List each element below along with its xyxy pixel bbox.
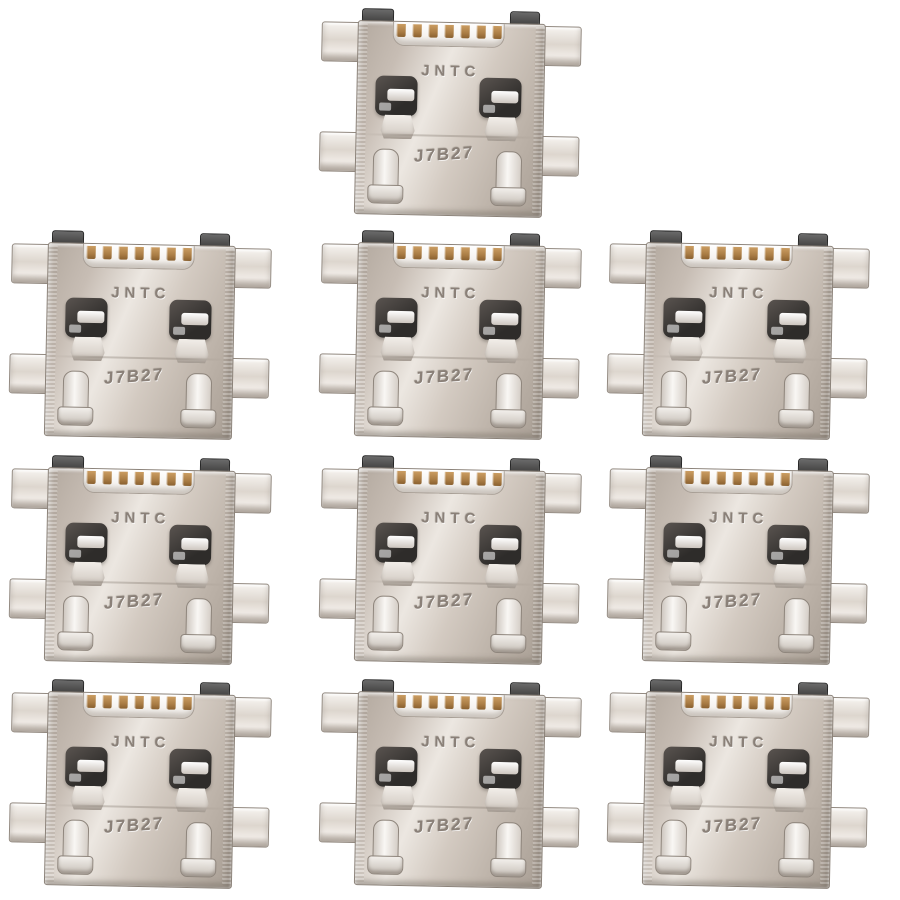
contact-pin <box>748 696 757 709</box>
contact-pin <box>134 247 143 260</box>
contact-pin <box>732 472 741 485</box>
shell-edge-texture-left <box>355 470 368 658</box>
contact-pin <box>86 695 95 708</box>
latch-slot-highlight <box>387 89 414 102</box>
contact-pin <box>780 697 789 710</box>
latch-slot-highlight <box>675 760 702 773</box>
contact-pin <box>476 248 485 261</box>
charging-port-connector-4: JNTC J7B27 <box>606 229 870 440</box>
latch-window-right <box>767 525 810 566</box>
contact-pin <box>700 246 709 259</box>
shell-edge-texture-right <box>222 698 235 886</box>
contact-pin <box>412 24 421 37</box>
latch-window-right <box>479 749 522 790</box>
charging-port-connector-2: JNTC J7B27 <box>8 229 272 440</box>
solder-leg-left <box>372 148 399 189</box>
contact-pin <box>396 246 405 259</box>
contact-pin <box>716 696 725 709</box>
latch-glint <box>69 550 81 558</box>
latch-slot-highlight <box>77 760 104 773</box>
latch-slot-highlight <box>387 760 414 773</box>
shell-edge-texture-left <box>45 245 58 433</box>
contact-pin <box>476 473 485 486</box>
charging-port-connector-9: JNTC J7B27 <box>318 678 582 889</box>
solder-leg-right <box>495 598 522 639</box>
latch-window-right <box>479 78 522 119</box>
latch-window-left <box>65 297 108 338</box>
latch-window-left <box>65 746 108 787</box>
contact-pin <box>460 247 469 260</box>
solder-leg-left <box>62 370 89 411</box>
pin-notch <box>392 469 504 495</box>
latch-glint <box>483 552 495 560</box>
contact-pin <box>118 472 127 485</box>
contact-pin <box>732 247 741 260</box>
contact-pin <box>86 471 95 484</box>
latch-glint <box>173 776 185 784</box>
latch-window-right <box>169 749 212 790</box>
shell-edge-texture-right <box>532 474 545 662</box>
latch-glint <box>379 774 391 782</box>
contact-pin <box>134 472 143 485</box>
connector-shell: JNTC J7B27 <box>44 467 236 665</box>
shell-edge-texture-left <box>45 694 58 882</box>
contact-pin <box>428 25 437 38</box>
contact-pin <box>102 695 111 708</box>
latch-window-left <box>663 297 706 338</box>
pin-notch <box>392 22 504 48</box>
pin-notch <box>392 244 504 270</box>
contact-pin <box>412 695 421 708</box>
connector-shell: JNTC J7B27 <box>354 691 546 889</box>
shell-edge-texture-left <box>45 470 58 658</box>
solder-leg-right <box>783 373 810 414</box>
solder-leg-right <box>495 373 522 414</box>
contact-pin <box>492 26 501 39</box>
latch-slot-highlight <box>387 311 414 324</box>
latch-window-left <box>375 75 418 116</box>
latch-slot-highlight <box>387 536 414 549</box>
contact-pin <box>428 247 437 260</box>
pin-notch <box>82 244 194 270</box>
latch-window-right <box>169 525 212 566</box>
latch-glint <box>771 552 783 560</box>
contact-pin <box>444 472 453 485</box>
latch-window-left <box>663 746 706 787</box>
connector-shell: JNTC J7B27 <box>44 691 236 889</box>
latch-slot-highlight <box>491 762 518 775</box>
pin-notch <box>680 469 792 495</box>
contact-pin <box>684 471 693 484</box>
contact-pin <box>716 472 725 485</box>
contact-pins <box>396 471 501 494</box>
latch-window-right <box>479 525 522 566</box>
contact-pins <box>684 695 789 718</box>
latch-slot-highlight <box>181 538 208 551</box>
contact-pin <box>780 473 789 486</box>
charging-port-connector-1: JNTC J7B27 <box>318 7 582 218</box>
latch-glint <box>379 325 391 333</box>
contact-pin <box>150 247 159 260</box>
charging-port-connector-5: JNTC J7B27 <box>8 454 272 665</box>
shell-edge-texture-right <box>532 27 545 215</box>
contact-pins <box>684 246 789 269</box>
connector-shell: JNTC J7B27 <box>642 242 834 440</box>
contact-pin <box>86 246 95 259</box>
contact-pins <box>86 471 191 494</box>
contact-pin <box>182 697 191 710</box>
contact-pin <box>732 696 741 709</box>
solder-leg-left <box>660 595 687 636</box>
product-photo: JNTC J7B27 <box>0 0 900 900</box>
latch-window-right <box>767 749 810 790</box>
shell-edge-texture-right <box>532 249 545 437</box>
latch-window-right <box>479 300 522 341</box>
latch-slot-highlight <box>77 311 104 324</box>
contact-pin <box>102 471 111 484</box>
pin-notch <box>82 693 194 719</box>
contact-pin <box>748 247 757 260</box>
contact-pin <box>444 25 453 38</box>
latch-slot-highlight <box>491 313 518 326</box>
latch-glint <box>69 325 81 333</box>
shell-edge-texture-right <box>532 698 545 886</box>
charging-port-connector-6: JNTC J7B27 <box>318 454 582 665</box>
latch-slot-highlight <box>779 538 806 551</box>
connector-shell: JNTC J7B27 <box>642 467 834 665</box>
pin-notch <box>680 693 792 719</box>
connector-shell: JNTC J7B27 <box>354 20 546 218</box>
contact-pin <box>182 473 191 486</box>
connector-shell: JNTC J7B27 <box>642 691 834 889</box>
solder-leg-right <box>185 598 212 639</box>
latch-window-right <box>169 300 212 341</box>
latch-glint <box>173 552 185 560</box>
contact-pins <box>684 471 789 494</box>
connector-shell: JNTC J7B27 <box>354 242 546 440</box>
solder-leg-right <box>783 822 810 863</box>
contact-pin <box>444 247 453 260</box>
contact-pin <box>396 24 405 37</box>
shell-edge-texture-left <box>355 23 368 211</box>
solder-leg-right <box>185 822 212 863</box>
charging-port-connector-8: JNTC J7B27 <box>8 678 272 889</box>
contact-pin <box>764 697 773 710</box>
contact-pin <box>102 246 111 259</box>
latch-glint <box>667 774 679 782</box>
latch-glint <box>771 776 783 784</box>
contact-pin <box>134 696 143 709</box>
shell-edge-texture-left <box>643 470 656 658</box>
latch-slot-highlight <box>779 762 806 775</box>
connector-shell: JNTC J7B27 <box>354 467 546 665</box>
contact-pin <box>476 697 485 710</box>
pin-notch <box>680 244 792 270</box>
contact-pin <box>460 25 469 38</box>
contact-pin <box>118 696 127 709</box>
contact-pin <box>412 246 421 259</box>
shell-edge-texture-left <box>643 694 656 882</box>
pin-notch <box>392 693 504 719</box>
latch-window-left <box>375 297 418 338</box>
contact-pins <box>86 695 191 718</box>
shell-edge-texture-right <box>222 474 235 662</box>
latch-slot-highlight <box>77 536 104 549</box>
shell-edge-texture-left <box>355 694 368 882</box>
shell-edge-texture-left <box>355 245 368 433</box>
shell-edge-texture-left <box>643 245 656 433</box>
contact-pin <box>428 696 437 709</box>
latch-glint <box>173 327 185 335</box>
contact-pin <box>764 473 773 486</box>
contact-pin <box>700 471 709 484</box>
contact-pin <box>476 26 485 39</box>
shell-edge-texture-right <box>820 474 833 662</box>
contact-pin <box>150 472 159 485</box>
contact-pin <box>460 472 469 485</box>
latch-glint <box>483 327 495 335</box>
contact-pin <box>396 695 405 708</box>
solder-leg-right <box>495 822 522 863</box>
contact-pins <box>396 246 501 269</box>
latch-window-left <box>663 522 706 563</box>
latch-glint <box>667 550 679 558</box>
latch-glint <box>69 774 81 782</box>
contact-pin <box>492 697 501 710</box>
shell-edge-texture-right <box>820 698 833 886</box>
connector-shell: JNTC J7B27 <box>44 242 236 440</box>
solder-leg-right <box>783 598 810 639</box>
solder-leg-right <box>185 373 212 414</box>
contact-pin <box>700 695 709 708</box>
latch-window-left <box>375 522 418 563</box>
solder-leg-left <box>62 819 89 860</box>
contact-pin <box>492 473 501 486</box>
contact-pin <box>396 471 405 484</box>
contact-pins <box>396 695 501 718</box>
latch-glint <box>379 103 391 111</box>
latch-slot-highlight <box>491 538 518 551</box>
contact-pin <box>428 472 437 485</box>
latch-window-right <box>767 300 810 341</box>
latch-slot-highlight <box>779 313 806 326</box>
latch-glint <box>771 327 783 335</box>
contact-pin <box>684 695 693 708</box>
contact-pin <box>166 697 175 710</box>
contact-pin <box>684 246 693 259</box>
charging-port-connector-10: JNTC J7B27 <box>606 678 870 889</box>
contact-pin <box>716 247 725 260</box>
solder-leg-left <box>660 819 687 860</box>
contact-pins <box>396 24 501 47</box>
contact-pin <box>764 248 773 261</box>
solder-leg-left <box>62 595 89 636</box>
latch-glint <box>483 776 495 784</box>
latch-window-left <box>65 522 108 563</box>
solder-leg-left <box>372 819 399 860</box>
contact-pin <box>182 248 191 261</box>
latch-slot-highlight <box>675 311 702 324</box>
contact-pin <box>150 696 159 709</box>
contact-pin <box>166 248 175 261</box>
contact-pin <box>748 472 757 485</box>
latch-glint <box>483 105 495 113</box>
contact-pin <box>118 247 127 260</box>
pin-notch <box>82 469 194 495</box>
contact-pins <box>86 246 191 269</box>
latch-glint <box>667 325 679 333</box>
latch-window-left <box>375 746 418 787</box>
latch-slot-highlight <box>181 762 208 775</box>
charging-port-connector-3: JNTC J7B27 <box>318 229 582 440</box>
contact-pin <box>460 696 469 709</box>
contact-pin <box>166 473 175 486</box>
contact-pin <box>780 248 789 261</box>
contact-pin <box>412 471 421 484</box>
solder-leg-right <box>495 151 522 192</box>
contact-pin <box>444 696 453 709</box>
contact-pin <box>492 248 501 261</box>
shell-edge-texture-right <box>222 249 235 437</box>
solder-leg-left <box>372 595 399 636</box>
solder-leg-left <box>660 370 687 411</box>
charging-port-connector-7: JNTC J7B27 <box>606 454 870 665</box>
solder-leg-left <box>372 370 399 411</box>
latch-slot-highlight <box>675 536 702 549</box>
latch-slot-highlight <box>491 91 518 104</box>
shell-edge-texture-right <box>820 249 833 437</box>
latch-glint <box>379 550 391 558</box>
latch-slot-highlight <box>181 313 208 326</box>
